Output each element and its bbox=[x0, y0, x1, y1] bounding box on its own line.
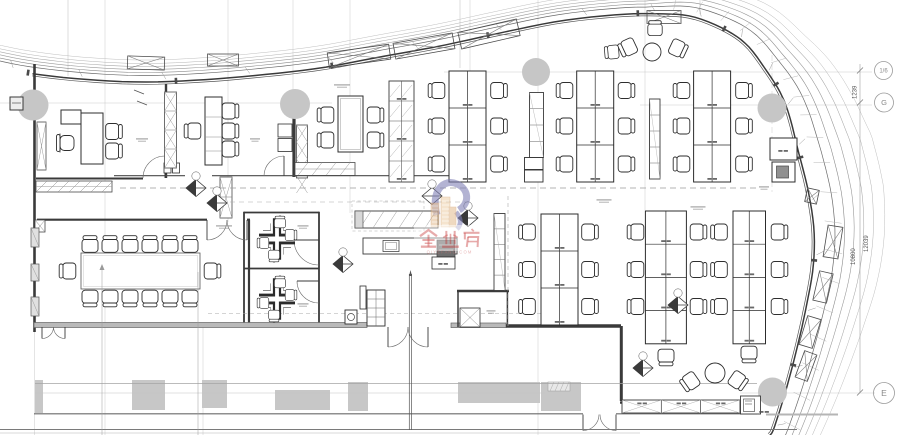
svg-text:1/6: 1/6 bbox=[879, 69, 888, 75]
svg-text:10800: 10800 bbox=[851, 248, 857, 265]
svg-text:G: G bbox=[881, 98, 887, 107]
svg-text:E: E bbox=[881, 388, 887, 398]
svg-text:Q I Y E F A N G . C O M: Q I Y E F A N G . C O M bbox=[427, 250, 472, 255]
svg-text:1239: 1239 bbox=[853, 85, 859, 99]
svg-text:12039: 12039 bbox=[864, 235, 870, 252]
